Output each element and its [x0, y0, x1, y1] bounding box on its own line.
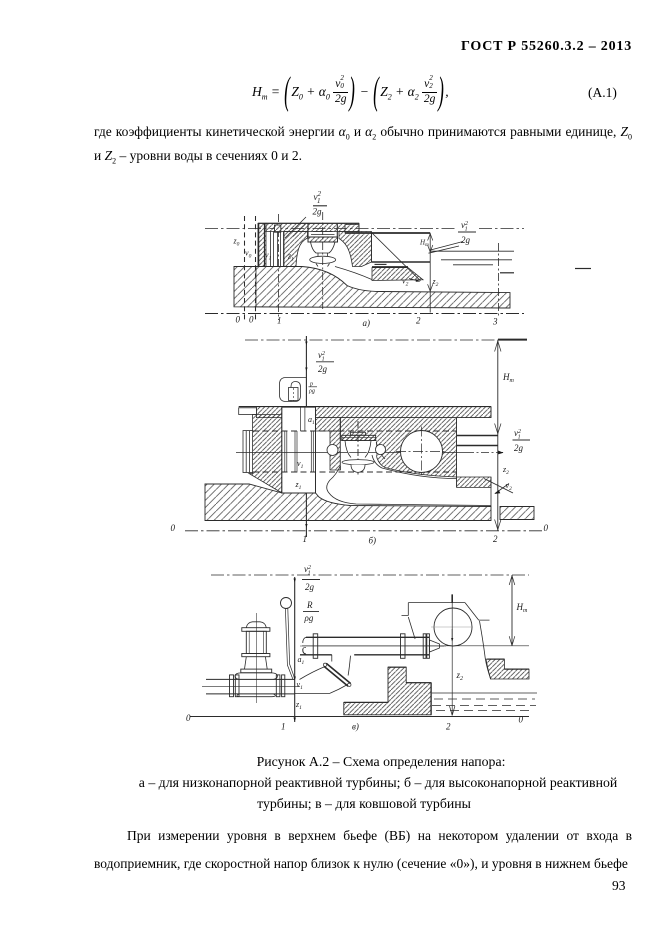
svg-text:ρg: ρg — [308, 389, 315, 395]
svg-text:Hт: Hт — [502, 372, 515, 384]
svg-text:0: 0 — [519, 715, 524, 725]
svg-text:2g: 2g — [461, 235, 471, 245]
svg-text:z1: z1 — [295, 700, 302, 711]
svg-text:a1: a1 — [298, 655, 305, 666]
svg-text:z2: z2 — [432, 277, 439, 288]
svg-text:v1: v1 — [297, 680, 304, 691]
svg-text:1: 1 — [281, 722, 286, 732]
svg-text:z2: z2 — [502, 465, 509, 476]
svg-text:2: 2 — [416, 316, 421, 326]
svg-text:v21: v21 — [314, 190, 322, 205]
svg-text:2g: 2g — [313, 207, 323, 217]
svg-text:ρg: ρg — [304, 613, 314, 623]
svg-text:2: 2 — [446, 722, 451, 732]
svg-text:1: 1 — [277, 316, 282, 326]
svg-text:3: 3 — [492, 317, 498, 327]
svg-text:2g: 2g — [318, 364, 328, 374]
svg-text:0: 0 — [544, 523, 549, 533]
svg-text:0: 0 — [186, 713, 191, 723]
svg-text:v21: v21 — [514, 428, 521, 441]
svg-text:v21: v21 — [461, 220, 468, 233]
svg-text:0: 0 — [236, 315, 241, 325]
svg-text:v0: v0 — [245, 249, 252, 260]
svg-text:а): а) — [363, 318, 371, 328]
svg-text:2: 2 — [493, 534, 498, 544]
svg-text:2g: 2g — [514, 443, 524, 453]
svg-text:2g: 2g — [305, 582, 315, 592]
svg-text:Hт: Hт — [516, 602, 529, 614]
svg-text:R: R — [306, 600, 313, 610]
svg-text:v2: v2 — [506, 481, 513, 492]
svg-text:б): б) — [369, 536, 377, 546]
svg-text:0: 0 — [171, 523, 176, 533]
svg-text:0: 0 — [249, 315, 254, 325]
svg-text:z0: z0 — [233, 237, 240, 248]
svg-text:в): в) — [352, 722, 359, 732]
svg-text:1: 1 — [303, 534, 308, 544]
svg-text:v21: v21 — [318, 350, 325, 363]
svg-text:z2: z2 — [456, 670, 464, 682]
